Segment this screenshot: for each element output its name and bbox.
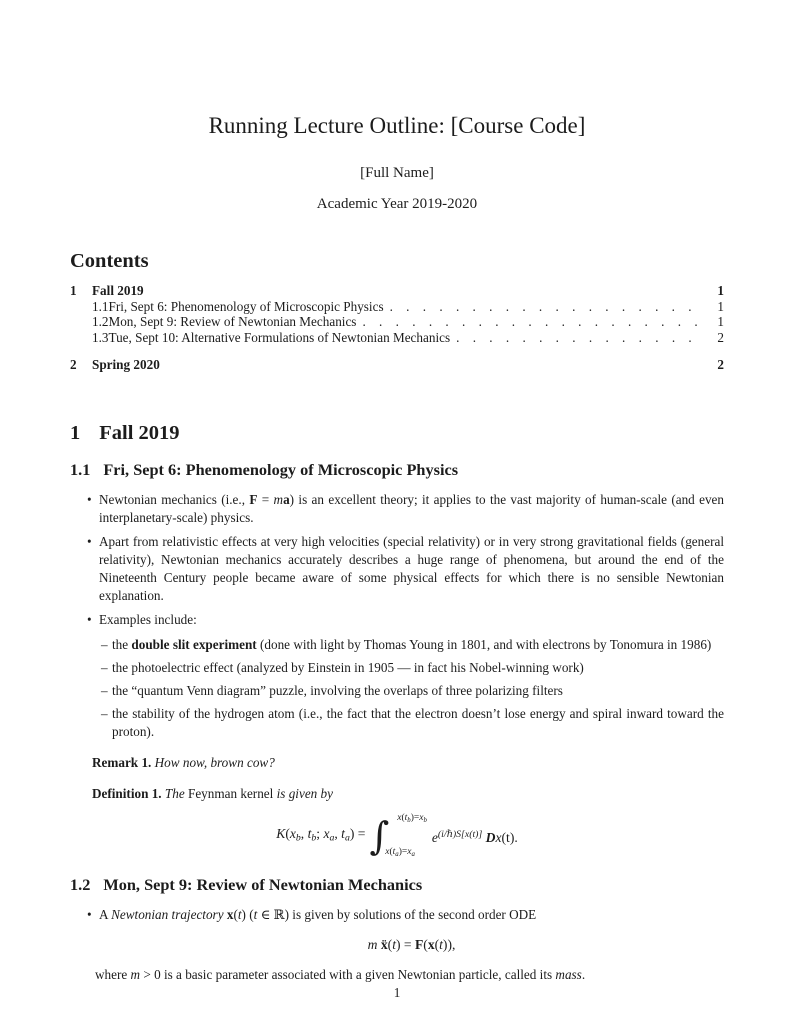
document-page: Running Lecture Outline: [Course Code] [… <box>0 0 794 1028</box>
author-name: [Full Name] <box>70 164 724 182</box>
dash-text: the “quantum Venn diagram” puzzle, invol… <box>112 683 563 698</box>
toc-entry-1-1: 1.1 Fri, Sept 6: Phenomenology of Micros… <box>70 299 724 315</box>
bullet-list: Newtonian mechanics (i.e., F = ma) is an… <box>70 491 724 741</box>
page-number: 1 <box>0 984 794 1002</box>
bullet-item: Examples include: the double slit experi… <box>70 611 724 741</box>
dash-list: the double slit experiment (done with li… <box>99 636 724 741</box>
kernel-lhs: K(xb, tb; xa, ta) = <box>276 825 365 848</box>
bullet-item: Apart from relativistic effects at very … <box>70 533 724 605</box>
kernel-rhs: e(i/ℏ)S[x(t)] Dx(t). <box>432 826 518 847</box>
toc-entry-1-2: 1.2 Mon, Sept 9: Review of Newtonian Mec… <box>70 314 724 330</box>
section-1-heading: 1 Fall 2019 <box>70 421 724 445</box>
feynman-kernel-equation: K(xb, tb; xa, ta) = ∫ x(tb)=xb x(ta)=xa … <box>70 813 724 860</box>
toc-entry-number: 2 <box>70 357 92 373</box>
toc-entry-number: 1 <box>70 283 92 299</box>
dash-item: the double slit experiment (done with li… <box>99 636 724 654</box>
dash-item: the “quantum Venn diagram” puzzle, invol… <box>99 682 724 700</box>
subsection-title: Fri, Sept 6: Phenomenology of Microscopi… <box>103 460 458 480</box>
bullet-text: Newtonian mechanics (i.e., F = ma) is an… <box>99 492 724 525</box>
toc-entry-1: 1 Fall 2019 1 <box>70 283 724 299</box>
toc-entry-page: 2 <box>706 357 724 373</box>
section-number: 1 <box>70 421 80 445</box>
ode-text: m ẍ(t) = F(x(t)), <box>368 937 456 952</box>
bullet-item: Newtonian mechanics (i.e., F = ma) is an… <box>70 491 724 527</box>
remark-paragraph: Remark 1. How now, brown cow? <box>92 754 724 772</box>
mass-paragraph: where m > 0 is a basic parameter associa… <box>95 966 724 984</box>
toc-entry-label: Fri, Sept 6: Phenomenology of Microscopi… <box>108 299 383 315</box>
subsection-number: 1.2 <box>70 875 90 895</box>
toc-entry-page: 1 <box>706 314 724 330</box>
bullet-item: A Newtonian trajectory x(t) (t ∈ ℝ) is g… <box>70 906 724 984</box>
integral-lower-limit: x(ta)=xa <box>385 847 427 860</box>
toc-entry-page: 1 <box>706 299 724 315</box>
definition-text: Definition 1. The Feynman kernel is give… <box>92 786 333 801</box>
toc-entry-page: 2 <box>706 330 724 346</box>
toc-entry-page: 1 <box>706 283 724 299</box>
toc-entry-number: 1.1 <box>92 299 108 315</box>
toc-entry-number: 1.3 <box>92 330 108 346</box>
document-title: Running Lecture Outline: [Course Code] <box>70 0 724 139</box>
toc-entry-label: Spring 2020 <box>92 357 160 373</box>
bullet-text: Examples include: <box>99 612 197 627</box>
dash-item: the stability of the hydrogen atom (i.e.… <box>99 705 724 741</box>
section-title: Fall 2019 <box>99 421 179 445</box>
dash-text: the stability of the hydrogen atom (i.e.… <box>112 706 724 739</box>
bullet-list: A Newtonian trajectory x(t) (t ∈ ℝ) is g… <box>70 906 724 984</box>
subsection-1-1-heading: 1.1 Fri, Sept 6: Phenomenology of Micros… <box>70 460 724 480</box>
toc-entry-label: Mon, Sept 9: Review of Newtonian Mechani… <box>108 314 356 330</box>
bullet-text: A Newtonian trajectory x(t) (t ∈ ℝ) is g… <box>99 907 536 922</box>
toc-entry-label: Fall 2019 <box>92 283 144 299</box>
subsection-title: Mon, Sept 9: Review of Newtonian Mechani… <box>103 875 422 895</box>
toc-dot-leader <box>456 330 700 346</box>
definition-paragraph: Definition 1. The Feynman kernel is give… <box>92 785 724 803</box>
dash-text: the double slit experiment (done with li… <box>112 637 711 652</box>
remark-text: Remark 1. How now, brown cow? <box>92 755 275 770</box>
table-of-contents: 1 Fall 2019 1 1.1 Fri, Sept 6: Phenomeno… <box>70 283 724 373</box>
dash-item: the photoelectric effect (analyzed by Ei… <box>99 659 724 677</box>
dash-text: the photoelectric effect (analyzed by Ei… <box>112 660 584 675</box>
subsection-number: 1.1 <box>70 460 90 480</box>
subsection-1-2-heading: 1.2 Mon, Sept 9: Review of Newtonian Mec… <box>70 875 724 895</box>
mass-text: where m > 0 is a basic parameter associa… <box>95 967 585 982</box>
newton-ode-equation: m ẍ(t) = F(x(t)), <box>99 936 724 954</box>
toc-entry-label: Tue, Sept 10: Alternative Formulations o… <box>108 330 450 346</box>
integral-upper-limit: x(tb)=xb <box>397 813 427 826</box>
toc-entry-1-3: 1.3 Tue, Sept 10: Alternative Formulatio… <box>70 330 724 346</box>
contents-heading: Contents <box>70 252 724 270</box>
toc-entry-2: 2 Spring 2020 2 <box>70 357 724 373</box>
bullet-text: Apart from relativistic effects at very … <box>99 534 724 603</box>
academic-year: Academic Year 2019-2020 <box>70 195 724 213</box>
integral-limits: x(tb)=xb x(ta)=xa <box>389 813 427 860</box>
toc-dot-leader <box>362 314 700 330</box>
toc-dot-leader <box>390 299 700 315</box>
toc-entry-number: 1.2 <box>92 314 108 330</box>
